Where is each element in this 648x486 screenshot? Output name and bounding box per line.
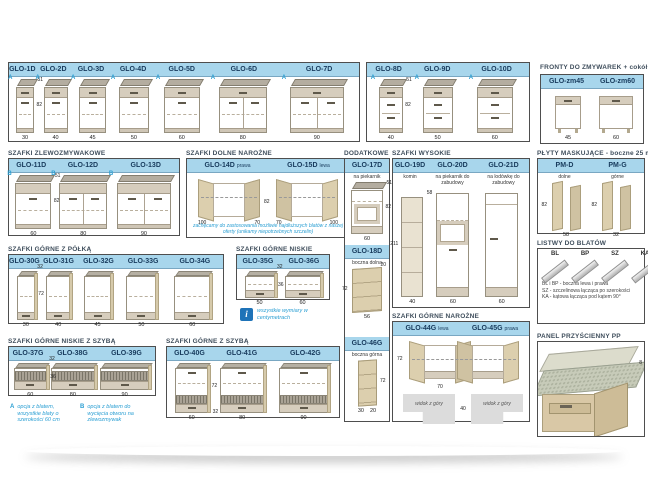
cabinet-item: 60 <box>429 193 478 305</box>
dim-height: 82 <box>592 202 598 208</box>
section-base-cabinets-a: GLO-1DGLO-2DGLO-3DGLO-4DGLO-5DGLO-6DGLO-… <box>8 62 360 142</box>
cabinet-code: GLO-19D <box>393 159 427 172</box>
width-label: 60 <box>189 415 195 421</box>
countertop <box>478 79 517 86</box>
title-dodatkowe: DODATKOWE <box>344 150 389 157</box>
tall-cabinet-drawing <box>485 193 518 297</box>
cabinet-item: A 60 <box>156 79 208 141</box>
width-label: 80 <box>240 135 246 141</box>
width-label: 90 <box>141 231 147 237</box>
wall-cabinet-drawing: 72 32 <box>175 363 208 413</box>
footnote-text: opcja z blatem, wszystkie blaty o szerok… <box>17 404 71 424</box>
cabinet-code: GLO-17D <box>345 159 389 172</box>
option-marker: A <box>156 75 160 81</box>
width-label: 50 <box>138 322 144 328</box>
width-label: 40 <box>409 299 415 305</box>
side-panel-drawing <box>352 267 382 313</box>
cabinet-code: GLO-32G <box>77 255 119 268</box>
width-label: 60 <box>492 135 498 141</box>
title-sink: SZAFKI ZLEWOZMYWAKOWE <box>8 150 105 157</box>
width-label: 90 <box>300 415 306 421</box>
dim-depth: 51 <box>386 180 392 186</box>
masking-panel-drawing: 82 <box>552 182 581 230</box>
option-marker: A <box>111 75 115 81</box>
countertop <box>291 79 348 86</box>
cabinet-item: 60 <box>592 96 640 141</box>
dim-height: 36 <box>278 282 284 288</box>
title-listwy: LISTWY DO BLATÓW <box>537 240 606 247</box>
strip-item: SZ <box>600 251 630 281</box>
cabinet-item: A 90 <box>278 79 356 141</box>
dim-height: 72 <box>38 291 44 297</box>
base-cabinet-drawing: A <box>164 79 200 133</box>
cabinet-code: GLO-15Dlewa <box>268 159 349 172</box>
cabinet-item: A 40 <box>38 79 73 141</box>
countertop <box>165 79 204 86</box>
strip-drawing <box>541 260 569 284</box>
cabinet-row: 58 211 40 60 <box>393 186 529 307</box>
dim-height: 82 <box>405 102 411 108</box>
width-label: 56 <box>364 314 370 320</box>
cabinet-code: GLO-30G <box>9 255 40 268</box>
width-label: 60 <box>30 231 36 237</box>
title-fronty: FRONTY DO ZMYWAREK + cokół <box>540 64 647 71</box>
dim-depth: 32 <box>49 356 55 362</box>
cabinet-item: GLO-17D na piekarnik 51 82 60 <box>345 159 389 245</box>
option-marker: B <box>109 171 113 177</box>
width-label: 80 <box>239 415 245 421</box>
front-drawing <box>555 96 581 129</box>
option-marker: A <box>371 75 375 81</box>
cabinet-item: B 90 <box>112 175 176 237</box>
cabinet-code: GLO-13D <box>112 159 179 172</box>
cabinet-front-drawing <box>542 394 598 432</box>
masking-panel-drawing: 82 <box>602 182 631 230</box>
cabinet-row: A 51 82 30 A <box>9 77 359 143</box>
wall-cabinet-drawing <box>279 363 329 413</box>
top-view-drawing: widok z góry <box>471 394 523 424</box>
cabinet-code: GLO-35G <box>237 255 279 268</box>
cabinet-item: GLO-18D boczna dolna 20 72 56 <box>345 245 389 337</box>
width-label: 60 <box>27 392 33 398</box>
strip-item: BL <box>540 251 570 281</box>
wall-cabinet-drawing: 32 72 <box>17 271 35 320</box>
countertop <box>120 79 153 86</box>
cabinet-code: GLO-39G <box>98 347 155 360</box>
top-view-drawing: widok z góry <box>403 394 455 424</box>
cabinet-item: 80 <box>213 363 271 421</box>
cabinet-code: GLO-6D <box>208 63 279 76</box>
cabinet-row: 32 36 60 <box>9 361 155 400</box>
dimensions-note: i wszystkie wymiary w centymetrach <box>240 308 321 321</box>
width-label: 30 <box>23 322 29 328</box>
strip-item: KA <box>630 251 648 281</box>
cabinet-item: 32 36 50 <box>240 271 279 306</box>
base-cabinet-drawing: A <box>79 79 106 133</box>
sink-cabinet-drawing: B <box>59 175 107 229</box>
cabinet-item: A 45 <box>73 79 112 141</box>
cabinet-side-label: lewa <box>320 163 330 169</box>
strip-item: BP <box>570 251 600 281</box>
base-cabinet-drawing: A <box>290 79 344 133</box>
cabinet-code: GLO-7D <box>279 63 359 76</box>
header-row: GLO-37GGLO-38GGLO-39G <box>9 347 155 361</box>
option-marker: A <box>36 75 40 81</box>
option-marker: B <box>80 404 84 411</box>
dim-height: 36 <box>50 374 56 380</box>
header-row: GLO-35GGLO-36G <box>237 255 329 269</box>
countertop <box>220 79 271 86</box>
countertop <box>424 79 457 86</box>
width-label: 80 <box>70 392 76 398</box>
title-niskie-szyba: SZAFKI GÓRNE NISKIE Z SZYBĄ <box>8 338 116 345</box>
cabinet-item: 45 <box>544 96 592 141</box>
cabinet-item: 72 32 60 <box>170 363 213 421</box>
cabinet-item: 100 70 <box>190 179 268 226</box>
cabinet-item: 58 211 40 <box>396 197 429 305</box>
header-row: GLO-19DGLO-20DGLO-21D <box>393 159 529 173</box>
countertop <box>80 79 110 86</box>
section-wall-glass: GLO-40GGLO-41GGLO-42G 72 32 60 <box>166 346 340 418</box>
cabinet-code: GLO-11D <box>9 159 53 172</box>
title-polka: SZAFKI GÓRNE Z PÓŁKĄ <box>8 246 91 253</box>
cabinet-code: GLO-zm45 <box>541 75 592 88</box>
cabinet-row: 72 32 60 <box>167 361 339 423</box>
base-cabinet-drawing: A 51 82 <box>16 79 34 133</box>
dim-depth: 32 <box>277 264 283 270</box>
width-label: 45 <box>565 135 571 141</box>
drawer-cabinet-drawing: A 51 82 <box>379 79 403 133</box>
dim-height: 72 <box>342 286 348 292</box>
cabinet-item: 60 <box>165 271 220 328</box>
info-text: wszystkie wymiary w centymetrach <box>257 308 321 321</box>
cabinet-item: 60 <box>477 193 526 305</box>
cabinet-item: 90 <box>97 363 152 398</box>
section-corner-base: GLO-14Dprawa GLO-15Dlewa 100 70 82 70 <box>186 158 350 238</box>
width-label: 60 <box>450 299 456 305</box>
cabinet-code: GLO-21D <box>478 159 529 172</box>
corner-note: zachęcamy do zastosowania możliwie najdł… <box>191 223 345 235</box>
info-icon: i <box>240 308 253 321</box>
section-fronty: GLO-zm45 GLO-zm60 45 60 <box>540 74 644 144</box>
corner-cabinet-drawing <box>198 179 260 219</box>
option-marker: A <box>211 75 215 81</box>
countertop <box>352 182 387 189</box>
wall-cabinet-drawing <box>174 271 210 320</box>
cabinet-code: GLO-3D <box>71 63 111 76</box>
cabinet-code: GLO-34G <box>167 255 223 268</box>
cabinet-code: GLO-40G <box>167 347 212 360</box>
corner-cabinet-drawing <box>276 179 338 219</box>
cabinet-code: GLO-14Dprawa <box>187 159 268 172</box>
width-label: 40 <box>388 135 394 141</box>
dim-depth: 51 <box>406 77 412 83</box>
width-label: 45 <box>89 135 95 141</box>
dim-height: 72 <box>212 383 218 389</box>
dim-height: 82 <box>37 102 43 108</box>
cabinet-item: A 51 82 30 <box>12 79 38 141</box>
width-label: 30 <box>22 135 28 141</box>
wall-cabinet-drawing <box>126 271 156 320</box>
strip-drawing <box>571 260 599 284</box>
cabinet-code: GLO-4D <box>111 63 155 76</box>
dim-height: 82 <box>264 199 270 205</box>
oven-cabinet-drawing: 51 82 <box>351 182 383 234</box>
option-marker: A <box>415 75 419 81</box>
cabinet-sub-label: na piekarnik <box>354 173 381 182</box>
title-panel-pp: PANEL PRZYŚCIENNY PP <box>537 333 621 340</box>
panel-item: 82 58 <box>541 182 591 238</box>
section-dodatkowe: GLO-17D na piekarnik 51 82 60 GLO-18D bo… <box>344 158 390 422</box>
cabinet-code: GLO-41G <box>212 347 272 360</box>
cabinet-code: GLO-44Glewa <box>393 322 461 335</box>
section-wall-shelf: GLO-30GGLO-31GGLO-32GGLO-33GGLO-34G 32 7… <box>8 254 224 324</box>
dim-width: 70 <box>409 384 471 390</box>
wall-cabinet-drawing <box>51 363 95 390</box>
title-niskie: SZAFKI GÓRNE NISKIE <box>236 246 312 253</box>
header-row: GLO-40GGLO-41GGLO-42G <box>167 347 339 361</box>
title-tall: SZAFKI WYSOKIE <box>392 150 451 157</box>
cabinet-code: GLO-46G <box>345 337 389 350</box>
sub-label-row: kominna piekarnik do zabudowyna lodówkę … <box>393 173 529 186</box>
base-cabinet-drawing: A <box>119 79 149 133</box>
cabinet-item: 90 <box>271 363 336 421</box>
cabinet-code: GLO-33G <box>120 255 167 268</box>
dim-height: 8 <box>639 360 642 366</box>
section-panel-pp: 8 <box>537 341 645 437</box>
dim-depth: 32 <box>37 264 43 270</box>
dim-height: 72 <box>397 356 403 362</box>
section-tall-cabinets: GLO-19DGLO-20DGLO-21D kominna piekarnik … <box>392 158 530 308</box>
width-label: 60 <box>299 300 305 306</box>
section-wall-corner: GLO-44Glewa GLO-45Gprawa 72 70 widok z g… <box>392 321 530 422</box>
strip-legend: BL i BP - boczna lewa i prawaSZ - szczel… <box>538 281 644 301</box>
strip-row: BL BP SZ KA <box>538 249 644 281</box>
section-plyty: PM-D PM-G dolne górne 82 58 82 32 <box>537 158 645 234</box>
cabinet-item: A 60 <box>464 79 526 141</box>
width-label: 90 <box>314 135 320 141</box>
cabinet-item: A 50 <box>412 79 464 141</box>
cabinet-row: 72 70 widok z góry 40 widok z góry <box>393 336 529 421</box>
option-marker: B <box>51 171 55 177</box>
cabinet-sub-label: komin <box>393 174 427 186</box>
cabinet-row: A 51 82 40 A <box>367 77 529 143</box>
cabinet-code: GLO-20D <box>427 159 478 172</box>
footnote-text: opcja z blatem do wycięcia otworu na zle… <box>87 404 141 424</box>
option-marker: A <box>71 75 75 81</box>
panel-code: PM-G <box>591 159 644 172</box>
width-label: 30 <box>358 408 364 414</box>
option-marker: A <box>282 75 286 81</box>
cabinet-item: 70 100 <box>268 179 346 226</box>
dim-height: 82 <box>385 204 391 210</box>
sink-cabinet-drawing: B <box>117 175 171 229</box>
section-wall-low: GLO-35GGLO-36G 32 36 50 <box>236 254 330 300</box>
cabinet-code: GLO-18D <box>345 245 389 258</box>
width-label: 60 <box>179 135 185 141</box>
wall-cabinet-drawing <box>220 363 264 413</box>
section-drawer-cabinets: GLO-8DGLO-9DGLO-10D A 51 82 40 A <box>366 62 530 142</box>
section-listwy: BL BP SZ KA BL i BP <box>537 248 645 324</box>
cabinet-row: 32 72 30 <box>9 269 223 330</box>
width-label: 80 <box>80 231 86 237</box>
base-cabinet-drawing: A <box>44 79 68 133</box>
tall-cabinet-drawing <box>436 193 469 297</box>
catalog-page: GLO-1DGLO-2DGLO-3DGLO-4DGLO-5DGLO-6DGLO-… <box>0 0 648 486</box>
top-view-label: widok z góry <box>403 401 455 407</box>
top-view-label: widok z góry <box>471 401 523 407</box>
depth-label: 20 <box>370 408 376 414</box>
cabinet-code: GLO-5D <box>155 63 208 76</box>
countertop <box>118 175 175 182</box>
title-gorne-szyba: SZAFKI GÓRNE Z SZYBĄ <box>166 338 249 345</box>
width-label: 60 <box>613 135 619 141</box>
cabinet-side-label: prawa <box>237 163 251 169</box>
panel-code: PM-D <box>538 159 591 172</box>
width-label: 32 <box>613 232 619 238</box>
cabinet-item: 80 <box>49 363 98 398</box>
base-cabinet-drawing: A <box>219 79 267 133</box>
cabinet-side-label: prawa <box>505 326 519 332</box>
cabinet-sub-label: boczna górna <box>352 351 382 360</box>
header-row: GLO-8DGLO-9DGLO-10D <box>367 63 529 77</box>
wall-cabinet-drawing <box>100 363 150 390</box>
cabinet-item: GLO-46G boczna górna 72 30 20 <box>345 337 389 419</box>
cabinet-item: 60 <box>279 271 326 306</box>
cabinet-item: 40 <box>40 271 77 328</box>
countertop <box>45 79 72 86</box>
dim-height: 211 <box>390 241 398 247</box>
legend-line: KA - kątowa łącząca pod kątem 90° <box>538 294 644 301</box>
header-row: GLO-1DGLO-2DGLO-3DGLO-4DGLO-5DGLO-6DGLO-… <box>9 63 359 77</box>
width-label: 58 <box>563 232 569 238</box>
cabinet-item: A 80 <box>208 79 278 141</box>
countertop <box>60 175 111 182</box>
cabinet-code: GLO-10D <box>464 63 529 76</box>
cabinet-sub-label: na lodówkę do zabudowy <box>478 174 529 186</box>
side-panel-drawing <box>358 359 377 406</box>
cabinet-code: GLO-1D <box>9 63 36 76</box>
cabinet-item: 32 72 30 <box>12 271 40 328</box>
tall-cabinet-drawing: 58 211 <box>401 197 423 297</box>
width-label: 40 <box>55 322 61 328</box>
option-marker: A <box>8 75 12 81</box>
width-label: 40 <box>52 135 58 141</box>
drawer-cabinet-drawing: A <box>477 79 513 133</box>
width-label: 90 <box>122 392 128 398</box>
front-drawing <box>599 96 633 129</box>
cabinet-sub-label: na piekarnik do zabudowy <box>427 174 478 186</box>
cabinet-item: B 51 82 60 <box>12 175 55 237</box>
title-narozne-g: SZAFKI GÓRNE NAROŻNE <box>392 313 479 320</box>
cabinet-code: GLO-12D <box>53 159 112 172</box>
dim-depth: 32 <box>213 409 219 415</box>
footnote-b: B opcja z blatem do wycięcia otworu na z… <box>80 404 141 424</box>
width-label: 60 <box>364 236 370 242</box>
top-view-row: widok z góry 40 widok z góry <box>403 394 523 424</box>
wall-panel-illustration: 8 <box>538 342 644 436</box>
strip-drawing <box>631 260 648 284</box>
sink-cabinet-drawing: B 51 82 <box>15 175 51 229</box>
strip-code: KA <box>641 251 648 257</box>
strip-code: BP <box>581 251 589 257</box>
wall-cabinet-drawing <box>285 271 321 298</box>
wall-cabinet-drawing <box>46 271 70 320</box>
dim-height: 72 <box>380 378 386 384</box>
section-wall-low-glass: GLO-37GGLO-38GGLO-39G 32 36 60 <box>8 346 156 396</box>
cabinet-code: GLO-45Gprawa <box>461 322 529 335</box>
width-label: 50 <box>256 300 262 306</box>
wall-cabinet-drawing: 32 36 <box>245 271 275 298</box>
page-shadow <box>26 446 622 456</box>
countertop <box>16 175 55 182</box>
width-label: 60 <box>499 299 505 305</box>
drawer-cabinet-drawing: A <box>423 79 453 133</box>
width-label: 60 <box>189 322 195 328</box>
cabinet-code: GLO-31G <box>40 255 78 268</box>
cabinet-code: GLO-zm60 <box>592 75 643 88</box>
cabinet-item: A 51 82 40 <box>370 79 412 141</box>
option-marker: B <box>7 171 11 177</box>
panel-item: 82 32 <box>591 182 641 238</box>
wall-cabinet-drawing <box>84 271 111 320</box>
title-plyty: PŁYTY MASKUJĄCE - boczne 25 mm <box>537 150 648 157</box>
cabinet-code: GLO-37G <box>9 347 47 360</box>
option-marker: A <box>10 404 14 411</box>
width-label: 50 <box>131 135 137 141</box>
cabinet-side-label: lewa <box>438 326 448 332</box>
wall-cabinet-drawing: 32 36 <box>14 363 47 390</box>
cabinet-item: 45 <box>77 271 119 328</box>
strip-drawing <box>601 260 629 284</box>
width-label: 45 <box>94 322 100 328</box>
countertop <box>380 79 407 86</box>
cabinet-item: B 80 <box>55 175 112 237</box>
cabinet-item: A 50 <box>112 79 156 141</box>
dim-depth: 40 <box>460 406 466 412</box>
cabinet-code: GLO-42G <box>272 347 339 360</box>
strip-code: BL <box>551 251 559 257</box>
header-row: GLO-11DGLO-12DGLO-13D <box>9 159 179 173</box>
title-corner-base: SZAFKI DOLNE NAROŻNE <box>186 150 272 157</box>
width-label: 50 <box>435 135 441 141</box>
option-marker: A <box>469 75 473 81</box>
dim-depth: 58 <box>427 190 433 196</box>
footnote-a: A opcja z blatem, wszystkie blaty o szer… <box>10 404 71 424</box>
cabinet-code: GLO-36G <box>279 255 329 268</box>
dim-depth: 20 <box>380 262 386 268</box>
cabinet-row: B 51 82 60 B <box>9 173 179 239</box>
dim-height: 82 <box>542 202 548 208</box>
dim-height: 82 <box>54 198 60 204</box>
cabinet-row: 32 36 50 <box>237 269 329 308</box>
section-sink-cabinets: GLO-11DGLO-12DGLO-13D B 51 82 60 <box>8 158 180 236</box>
corner-cabinet-drawing <box>457 341 519 381</box>
cabinet-item: 50 <box>118 271 164 328</box>
cabinet-code: GLO-2D <box>36 63 71 76</box>
cabinet-item: 32 36 60 <box>12 363 49 398</box>
strip-code: SZ <box>611 251 619 257</box>
